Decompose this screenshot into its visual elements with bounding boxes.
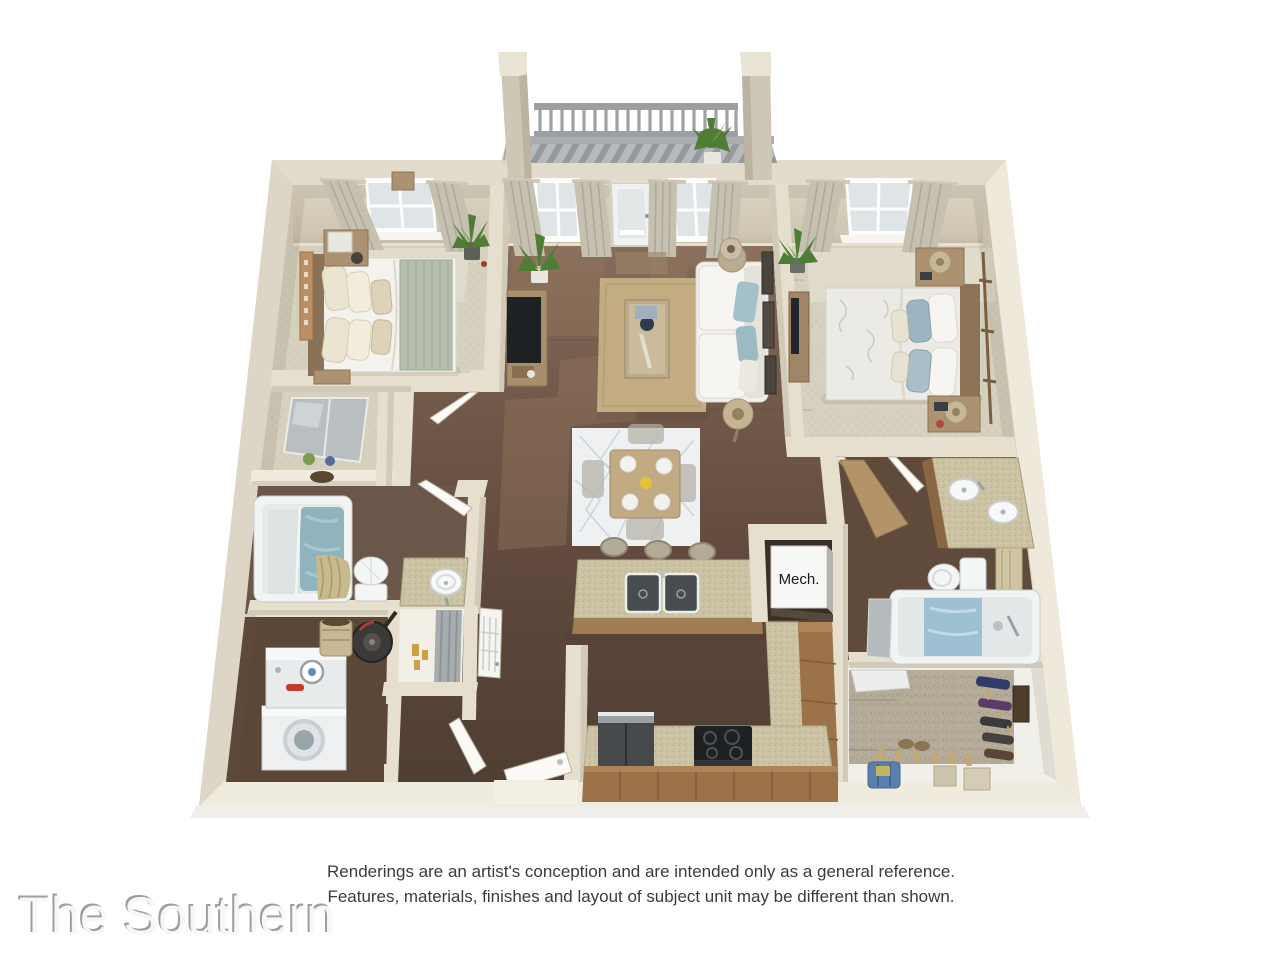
svg-text:Mech.: Mech. bbox=[779, 571, 820, 588]
svg-text:The Southern: The Southern bbox=[19, 887, 335, 946]
svg-text:Renderings are an artist's con: Renderings are an artist's conception an… bbox=[327, 862, 955, 881]
svg-text:Features, materials, finishes: Features, materials, finishes and layout… bbox=[328, 887, 955, 906]
